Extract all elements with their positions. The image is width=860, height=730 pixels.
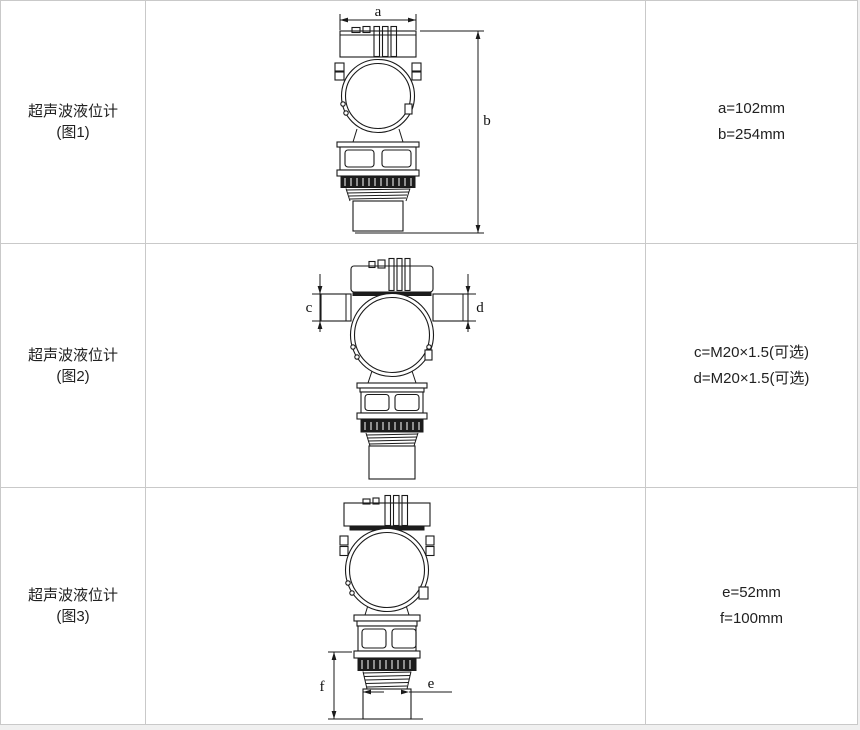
threads (363, 672, 411, 690)
spec-line: b=254mm (718, 122, 785, 148)
housing-circle (351, 294, 434, 377)
figure-number: (图2) (56, 366, 89, 387)
knurled-ring (361, 420, 423, 432)
dimension-d: d (466, 274, 485, 332)
dim-label-d: d (476, 300, 484, 316)
process-connection (357, 383, 427, 432)
clamp-right (412, 63, 421, 71)
hinge-tab (419, 587, 428, 599)
dim-label-c: c (306, 300, 313, 316)
knurled-ring (358, 658, 416, 671)
product-name: 超声波液位计 (28, 345, 118, 366)
flange-bolt (346, 581, 350, 585)
hex-nut (361, 392, 423, 413)
product-dimension-table: 超声波液位计 (图1) a b (0, 0, 858, 725)
spec-cell-fig2: c=M20×1.5(可选) d=M20×1.5(可选) (646, 244, 857, 487)
product-name: 超声波液位计 (28, 585, 118, 606)
dim-label-f: f (320, 679, 325, 695)
threads (346, 189, 410, 202)
flange-bolt (351, 345, 355, 349)
clamp-right (426, 536, 434, 545)
spec-cell-fig3: e=52mm f=100mm (646, 488, 857, 724)
spec-line: e=52mm (722, 580, 781, 606)
housing-circle (335, 60, 421, 133)
product-label-cell-fig1: 超声波液位计 (图1) (1, 1, 145, 243)
hinge-tab (425, 350, 432, 360)
transducer-probe (353, 201, 403, 231)
spec-line: f=100mm (720, 606, 783, 632)
flange-bolt (355, 355, 359, 359)
technical-drawing-fig2: c d (146, 244, 645, 487)
flange-bolt (427, 345, 431, 349)
threads (366, 433, 418, 446)
housing-circle (340, 529, 434, 612)
drawing-cell-fig2: c d (146, 244, 645, 487)
spec-cell-fig1: a=102mm b=254mm (646, 1, 857, 243)
drawing-cell-fig3: f e (146, 488, 645, 724)
spec-line: a=102mm (718, 96, 785, 122)
knurled-ring (341, 176, 415, 188)
figure-number: (图1) (56, 122, 89, 143)
product-label-cell-fig2: 超声波液位计 (图2) (1, 244, 145, 487)
top-cap (351, 259, 433, 296)
top-cap (344, 496, 430, 531)
spec-line: c=M20×1.5(可选) (694, 340, 809, 366)
flange-bolt (341, 102, 345, 106)
transducer-probe (369, 446, 415, 479)
dim-label-b: b (483, 113, 491, 129)
hex-nut (358, 626, 416, 651)
flange-bolt (344, 111, 348, 115)
process-connection (354, 615, 420, 671)
flange-bolt (350, 591, 354, 595)
product-label-cell-fig3: 超声波液位计 (图3) (1, 488, 145, 724)
product-name: 超声波液位计 (28, 101, 118, 122)
clamp-left (340, 536, 348, 545)
technical-drawing-fig3: f e (146, 488, 645, 725)
figure-number: (图3) (56, 606, 89, 627)
dim-label-e: e (428, 676, 435, 692)
clamp-left (335, 63, 344, 71)
hinge-tab (405, 104, 412, 114)
technical-drawing-fig1: a b (146, 1, 645, 243)
dim-label-a: a (375, 4, 382, 20)
drawing-cell-fig1: a b (146, 1, 645, 243)
process-connection (337, 142, 419, 188)
spec-line: d=M20×1.5(可选) (694, 366, 810, 392)
dimension-c: c (306, 274, 323, 332)
top-cap (340, 27, 416, 58)
